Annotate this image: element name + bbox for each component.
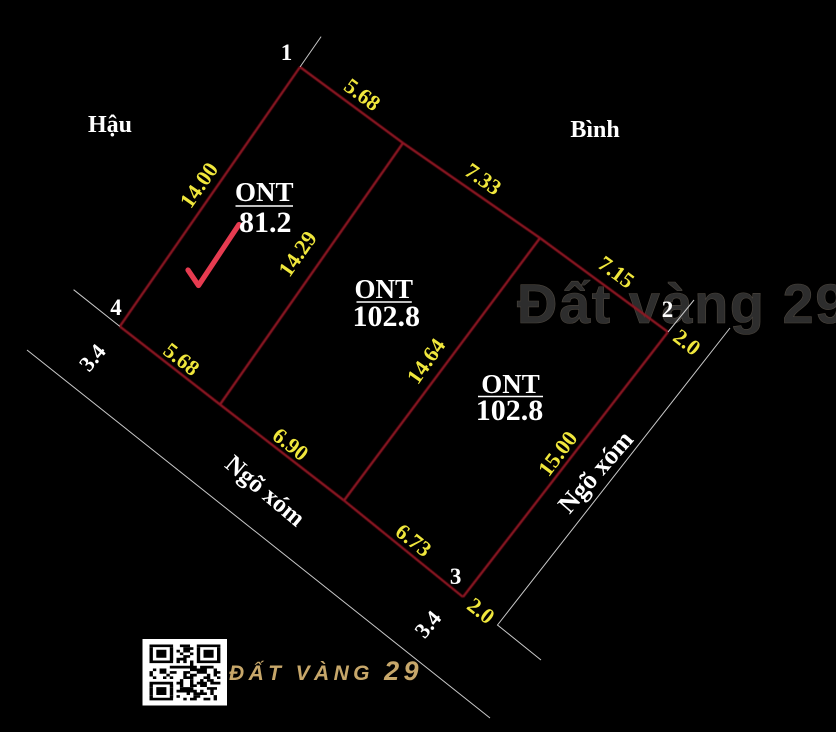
svg-text:4: 4	[110, 295, 122, 320]
svg-text:Đất vàng 29: Đất vàng 29	[517, 272, 836, 335]
svg-text:102.8: 102.8	[353, 300, 421, 333]
svg-text:ONT: ONT	[235, 177, 294, 207]
svg-text:2: 2	[662, 297, 674, 322]
svg-text:1: 1	[281, 40, 293, 65]
svg-text:Hậu: Hậu	[88, 112, 132, 138]
svg-text:Bình: Bình	[570, 117, 619, 143]
svg-text:102.8: 102.8	[476, 394, 544, 427]
svg-text:3: 3	[450, 564, 462, 589]
svg-text:81.2: 81.2	[239, 206, 292, 239]
